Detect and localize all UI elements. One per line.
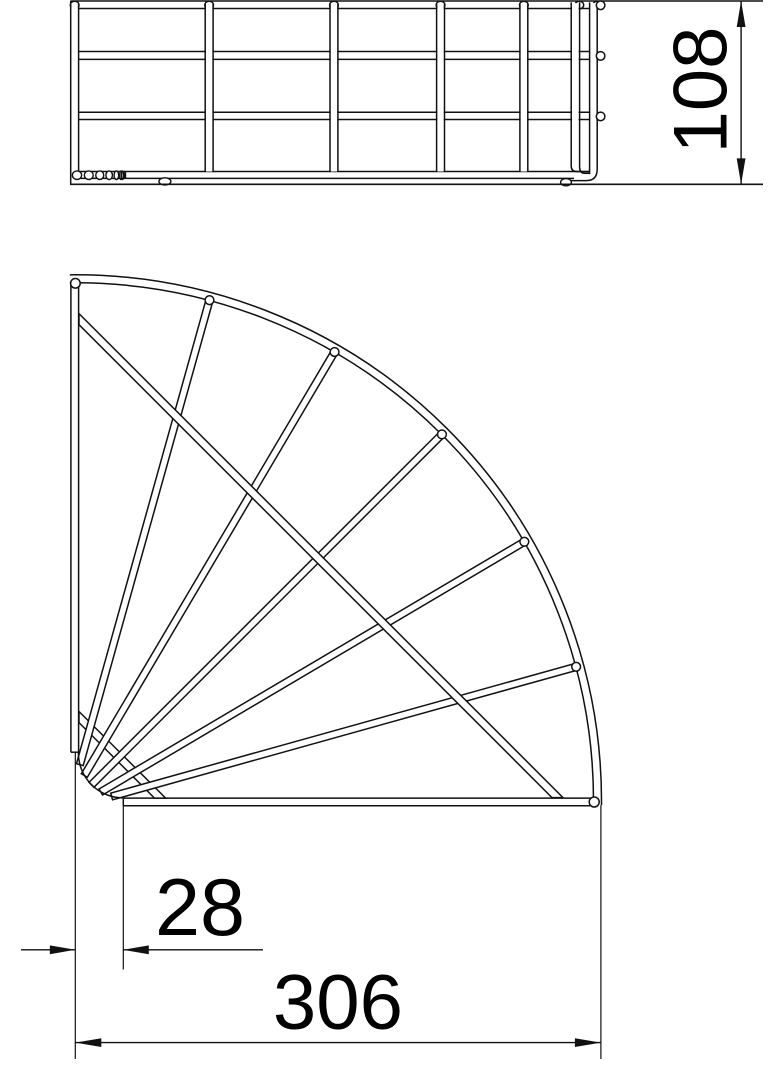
svg-text:108: 108 [659,27,744,154]
svg-text:306: 306 [273,958,403,1046]
svg-text:28: 28 [155,863,245,953]
